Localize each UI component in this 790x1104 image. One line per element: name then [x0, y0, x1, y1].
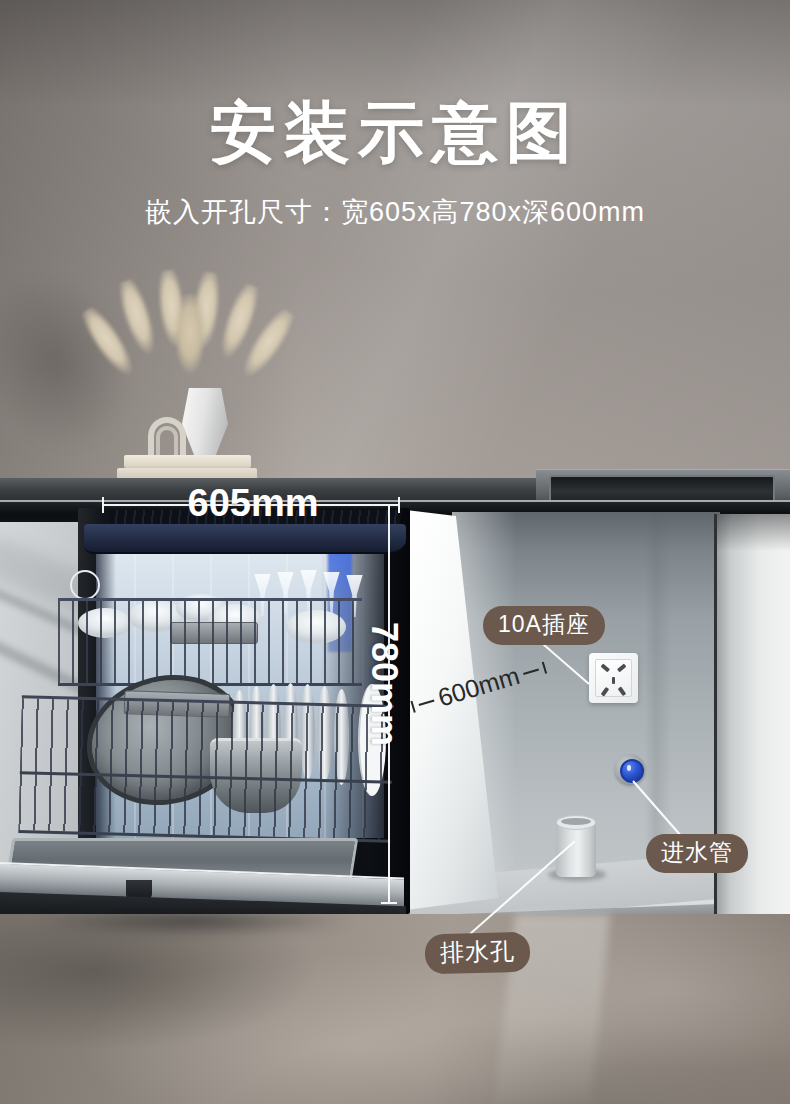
socket-callout: 10A插座 — [483, 606, 605, 645]
width-dimension-label: 605mm — [168, 482, 338, 525]
drain-pipe — [556, 820, 596, 877]
door-floor-shadow — [0, 906, 430, 944]
lower-rack-wires — [18, 695, 393, 843]
arch-ornament — [148, 417, 186, 459]
page-subtitle: 嵌入开孔尺寸：宽605x高780x深600mm — [0, 194, 790, 230]
lower-rack — [20, 676, 392, 844]
kitchen-sink — [549, 475, 775, 503]
power-socket — [589, 653, 638, 703]
water-inlet-valve — [620, 759, 644, 783]
page-title: 安装示意图 — [0, 88, 790, 178]
whisk — [70, 570, 100, 600]
inlet-callout: 进水管 — [646, 834, 748, 873]
book — [124, 455, 251, 468]
height-dimension-label: 780mm — [362, 622, 406, 792]
upper-rack-wires — [58, 598, 362, 686]
installation-diagram: 安装示意图 嵌入开孔尺寸：宽605x高780x深600mm 605mm 780m… — [0, 0, 790, 1104]
drain-callout: 排水孔 — [424, 932, 530, 975]
dishwasher-lid — [84, 524, 406, 554]
upper-rack — [58, 570, 362, 686]
